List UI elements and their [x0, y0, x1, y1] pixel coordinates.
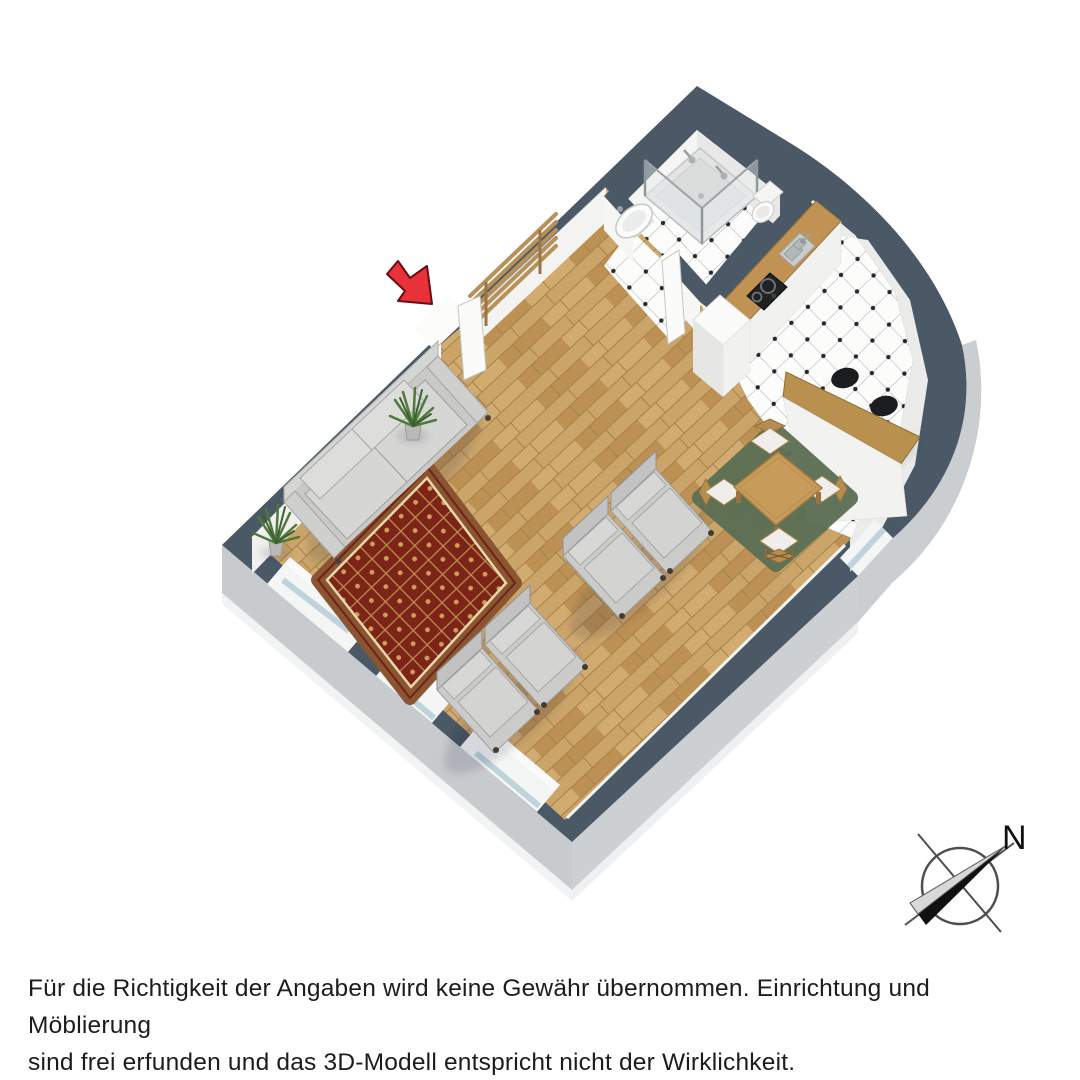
disclaimer-line-2: sind frei erfunden und das 3D-Modell ent…: [28, 1044, 1058, 1080]
armchair-1b-leg-2: [708, 530, 714, 536]
floorplan-page: N Für die Richtigkeit der Angaben wird k…: [0, 0, 1080, 1080]
disclaimer-line-1: Für die Richtigkeit der Angaben wird kei…: [28, 970, 1058, 1044]
armchair-2a-leg-2: [534, 709, 540, 715]
compass-north-label: N: [1002, 819, 1027, 857]
armchair-1b-leg-1: [667, 568, 673, 574]
bathroom-sink-faucet: [617, 206, 623, 212]
armchair-1a-leg-2: [660, 575, 666, 581]
disclaimer: Für die Richtigkeit der Angaben wird kei…: [28, 970, 1058, 1080]
compass: N: [905, 819, 1027, 932]
shower-head-1-cap: [689, 157, 696, 164]
floorplan-svg: N: [0, 0, 1080, 1080]
shower-head-2-cap: [721, 173, 728, 180]
armchair-2a-leg-1: [493, 747, 499, 753]
dining-table-leg-1: [816, 492, 821, 504]
armchair-1a-leg-1: [619, 613, 625, 619]
stove-burner-3: [772, 294, 777, 299]
sofa-leg-1: [335, 558, 341, 564]
entrance-arrow: [387, 261, 432, 304]
compass-needle-dark: [918, 845, 1007, 925]
shower-drain: [698, 193, 704, 199]
floorplan-scene: [222, 86, 981, 901]
sofa-leg-2: [485, 415, 491, 421]
armchair-2b-leg-1: [541, 702, 547, 708]
armchair-2b-leg-2: [582, 664, 588, 670]
